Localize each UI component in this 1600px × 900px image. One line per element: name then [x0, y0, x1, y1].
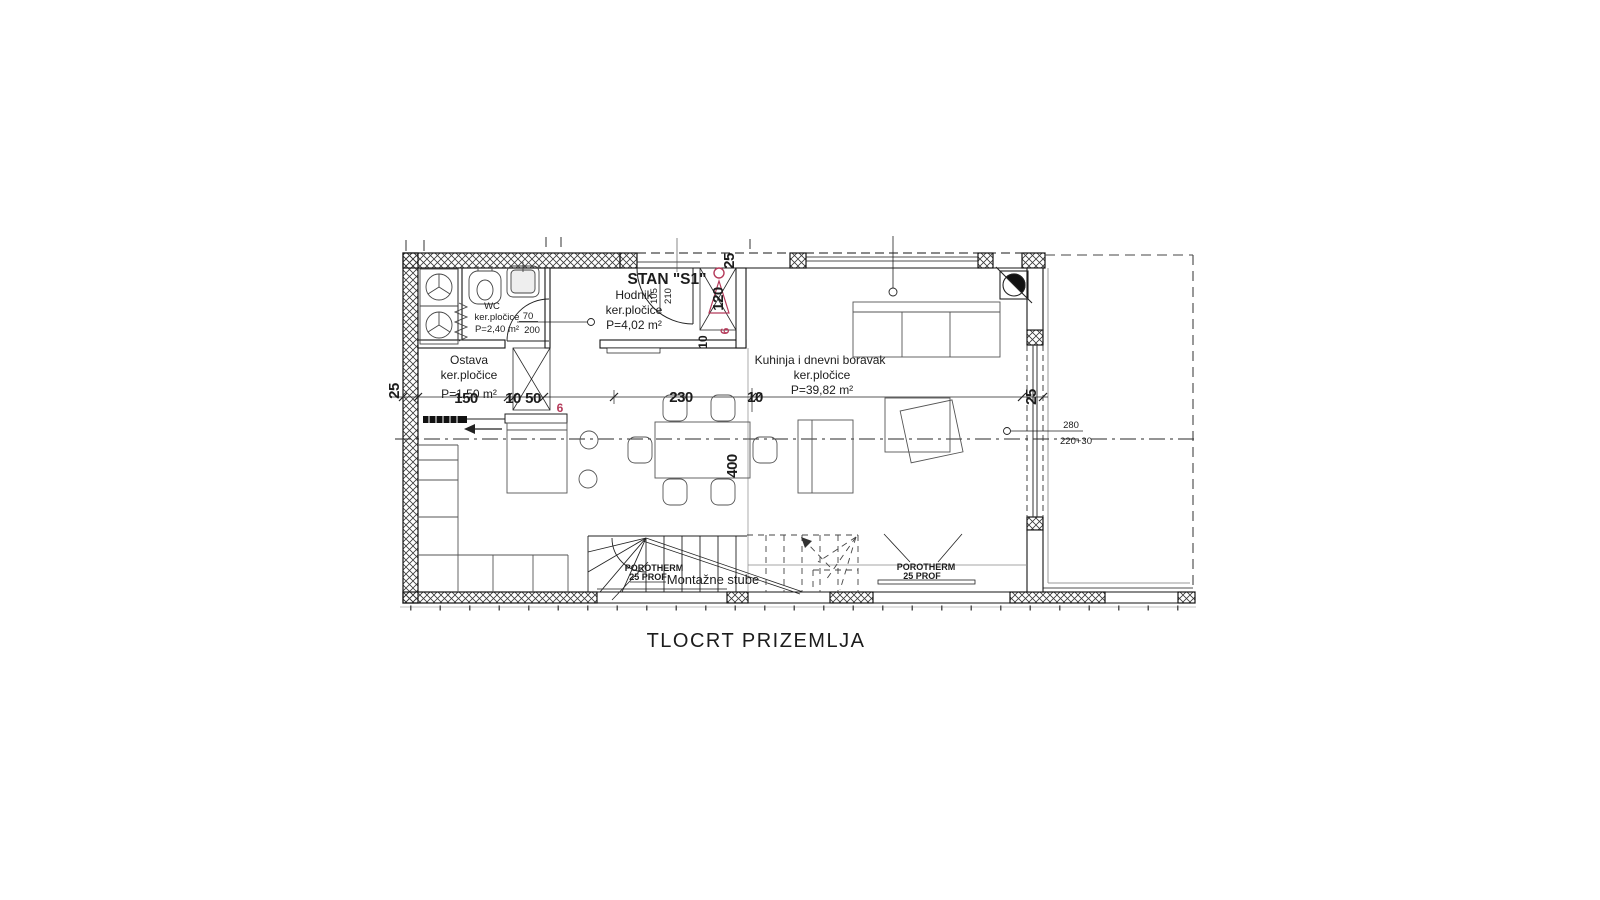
chair: [753, 437, 777, 463]
armchair: [798, 420, 853, 493]
dim-dining-w: 230: [669, 389, 693, 406]
dim-entry-door-w: 105: [649, 288, 660, 304]
wall-spec1-line2: 25 PROF: [629, 572, 667, 582]
dim-wall-left: 25: [386, 383, 403, 399]
chair: [628, 437, 652, 463]
sofa: [853, 302, 1000, 357]
unit-label: STAN "S1": [627, 271, 706, 288]
dim-10b: 10: [747, 389, 763, 406]
dim-red6b: 6: [557, 401, 564, 415]
stairs-label: Montažne stube: [667, 572, 760, 587]
wc-door-h: 200: [524, 325, 540, 336]
wc-area: P=2,40 m²: [475, 324, 519, 335]
dim-entry-door-h: 210: [663, 288, 674, 304]
dim-window-right-w: 280: [1063, 420, 1079, 431]
floor-plan-page: STAN "S1" Hodnik ker.pločice P=4,02 m² W…: [0, 0, 1600, 900]
stairs-direction-arrowhead: [801, 537, 812, 548]
wc-door-w: 70: [523, 311, 534, 322]
ostava-sliding-door: [423, 414, 567, 434]
side-table-rotated: [900, 400, 963, 463]
kuhinja-floor: ker.pločice: [794, 368, 851, 382]
hodnik-name: Hodnik: [615, 288, 653, 302]
dim-window-right-sill: 220+30: [1060, 436, 1092, 447]
kitchen-island: [507, 423, 567, 493]
hodnik-floor: ker.pločice: [606, 303, 663, 317]
drawing-title: TLOCRT PRIZEMLJA: [647, 630, 866, 652]
slide-direction-arrow: [464, 424, 475, 434]
bar-stool: [580, 431, 598, 449]
living-furniture: [798, 302, 1000, 493]
dim-niche-top: 25: [721, 253, 738, 269]
dim-niche-h: 120: [710, 287, 727, 311]
chair: [663, 479, 687, 505]
bar-stool: [579, 470, 597, 488]
toilet-icon: [469, 266, 501, 304]
side-table: [885, 398, 950, 452]
wc-name: WC: [484, 301, 500, 312]
chair: [711, 395, 735, 421]
wall-spec2-line2: 25 PROF: [903, 571, 941, 581]
kuhinja-area: P=39,82 m²: [791, 383, 853, 397]
hodnik-area: P=4,02 m²: [606, 318, 662, 332]
ostava-floor: ker.pločice: [441, 368, 498, 382]
dim-niche-b: 10: [696, 335, 710, 349]
dim-table-l: 400: [724, 454, 741, 478]
dim-10a: 10: [505, 390, 521, 407]
floor-plan-drawing: STAN "S1" Hodnik ker.pločice P=4,02 m² W…: [0, 0, 1600, 900]
stairs-upper-dashed: [747, 535, 858, 592]
ceiling-point: [889, 236, 897, 296]
dim-wall-right: 25: [1023, 389, 1040, 405]
dining-set: [628, 395, 777, 505]
dim-ostava-w: 150: [454, 390, 478, 407]
wc-floor: ker.pločice: [475, 312, 520, 323]
dim-50: 50: [525, 390, 541, 407]
kitchen-counters: [418, 423, 598, 592]
dim-red6a: 6: [718, 327, 732, 334]
chair: [711, 479, 735, 505]
kuhinja-name: Kuhinja i dnevni boravak: [755, 353, 887, 367]
ostava-name: Ostava: [450, 353, 488, 367]
